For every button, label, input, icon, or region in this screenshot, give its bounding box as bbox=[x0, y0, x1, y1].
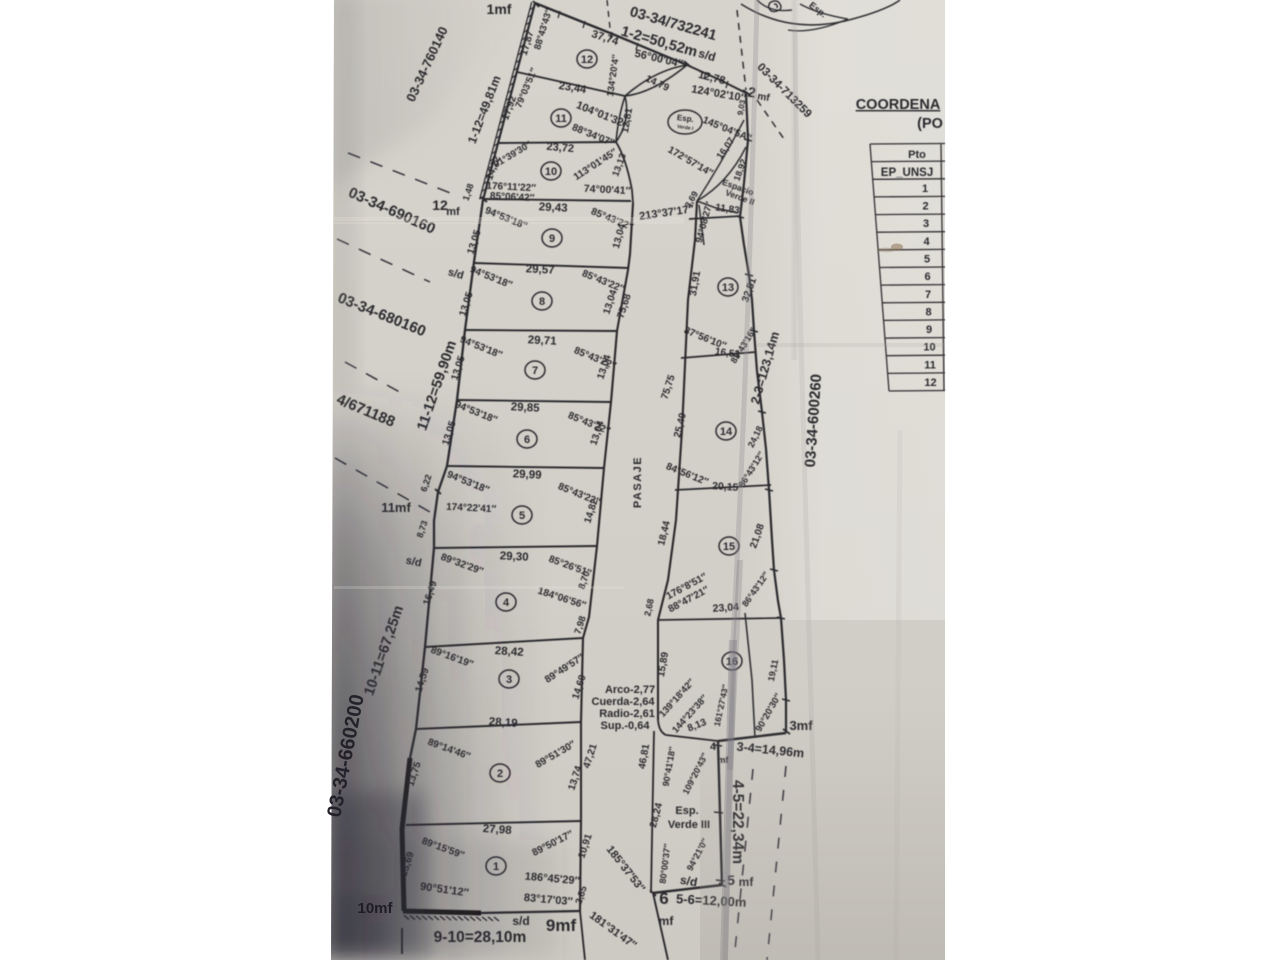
svg-text:29,43: 29,43 bbox=[538, 201, 567, 214]
svg-text:mf: mf bbox=[446, 206, 460, 218]
svg-text:1: 1 bbox=[922, 183, 928, 195]
svg-text:9: 9 bbox=[926, 324, 932, 336]
svg-text:12: 12 bbox=[581, 54, 593, 66]
svg-text:12: 12 bbox=[924, 377, 936, 389]
svg-text:6: 6 bbox=[659, 889, 668, 908]
svg-text:5: 5 bbox=[924, 254, 930, 266]
svg-text:15: 15 bbox=[723, 541, 735, 553]
svg-text:8: 8 bbox=[539, 296, 545, 308]
svg-text:Arco-2,77: Arco-2,77 bbox=[605, 684, 655, 696]
svg-text:13: 13 bbox=[722, 282, 734, 294]
svg-text:Radio-2,61: Radio-2,61 bbox=[599, 708, 655, 720]
svg-text:6: 6 bbox=[924, 271, 930, 283]
svg-text:Sup.-0,64: Sup.-0,64 bbox=[601, 720, 651, 732]
svg-text:EP_UNSJ: EP_UNSJ bbox=[881, 167, 933, 179]
svg-text:29,71: 29,71 bbox=[527, 334, 557, 348]
svg-text:23,72: 23,72 bbox=[546, 141, 574, 155]
svg-text:Pto: Pto bbox=[908, 149, 926, 161]
svg-text:29,57: 29,57 bbox=[525, 263, 554, 276]
svg-text:9: 9 bbox=[549, 233, 555, 245]
svg-text:11: 11 bbox=[924, 359, 936, 371]
svg-text:11: 11 bbox=[555, 113, 567, 125]
svg-text:PASAJE: PASAJE bbox=[632, 456, 644, 508]
svg-text:7: 7 bbox=[925, 289, 931, 301]
svg-text:10mf: 10mf bbox=[357, 900, 393, 917]
svg-text:1mf: 1mf bbox=[487, 1, 512, 17]
svg-text:COORDENA: COORDENA bbox=[856, 97, 941, 113]
svg-text:74°00'41″: 74°00'41″ bbox=[583, 183, 630, 197]
svg-text:s/d: s/d bbox=[679, 873, 699, 890]
svg-text:3: 3 bbox=[923, 218, 929, 230]
svg-text:10: 10 bbox=[545, 166, 557, 178]
svg-text:85°06'42″: 85°06'42″ bbox=[490, 191, 535, 204]
svg-text:Cuerda-2,64: Cuerda-2,64 bbox=[592, 696, 656, 708]
svg-text:mf: mf bbox=[659, 914, 675, 928]
svg-text:4: 4 bbox=[923, 236, 930, 248]
svg-text:Esp.: Esp. bbox=[675, 805, 698, 817]
svg-text:8: 8 bbox=[925, 306, 931, 318]
svg-text:20,15: 20,15 bbox=[712, 480, 739, 494]
svg-text:14: 14 bbox=[720, 426, 733, 438]
svg-text:(PO: (PO bbox=[917, 116, 943, 132]
svg-text:2: 2 bbox=[922, 201, 928, 213]
